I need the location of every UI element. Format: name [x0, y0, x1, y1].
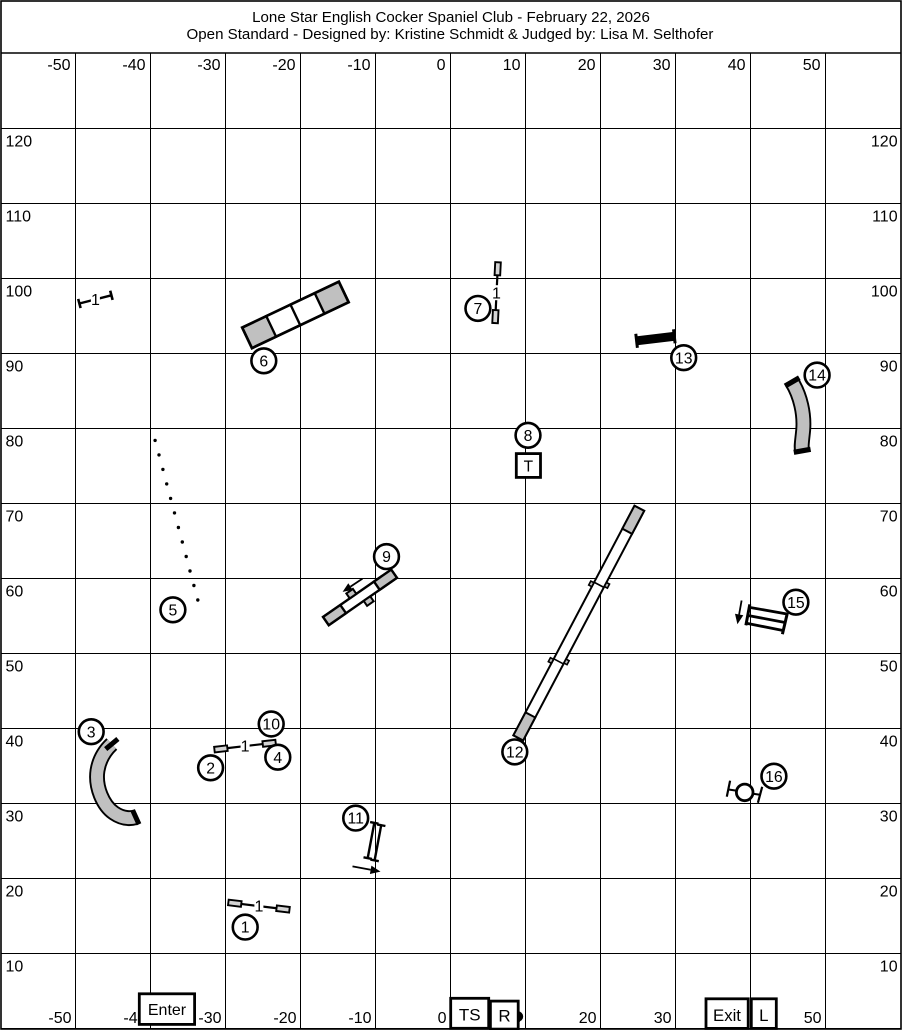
- svg-text:-40: -40: [122, 57, 145, 74]
- svg-text:20: 20: [578, 57, 596, 74]
- svg-text:8: 8: [524, 428, 533, 445]
- svg-text:100: 100: [871, 284, 898, 301]
- svg-text:-10: -10: [348, 1010, 371, 1027]
- svg-text:40: 40: [880, 734, 898, 751]
- svg-text:T: T: [524, 458, 534, 475]
- svg-text:90: 90: [6, 359, 24, 376]
- svg-text:11: 11: [347, 811, 364, 828]
- svg-text:Lone Star English Cocker Spani: Lone Star English Cocker Spaniel Club - …: [252, 9, 650, 26]
- svg-text:50: 50: [880, 659, 898, 676]
- svg-text:L: L: [759, 1006, 768, 1025]
- svg-text:1: 1: [91, 292, 100, 309]
- svg-text:-50: -50: [47, 57, 70, 74]
- svg-text:-30: -30: [198, 1010, 221, 1027]
- svg-text:9: 9: [382, 549, 391, 566]
- svg-text:1: 1: [241, 739, 250, 756]
- svg-text:Enter: Enter: [148, 1002, 187, 1019]
- svg-text:-20: -20: [272, 57, 295, 74]
- svg-text:12: 12: [506, 745, 524, 762]
- svg-text:R: R: [498, 1006, 510, 1025]
- svg-text:110: 110: [6, 209, 32, 226]
- svg-text:120: 120: [871, 134, 898, 151]
- svg-text:6: 6: [259, 353, 268, 370]
- svg-text:-30: -30: [197, 57, 220, 74]
- svg-text:Open Standard - Designed by: K: Open Standard - Designed by: Kristine Sc…: [187, 26, 714, 43]
- svg-text:80: 80: [880, 434, 898, 451]
- svg-text:100: 100: [6, 284, 33, 301]
- svg-text:120: 120: [6, 134, 33, 151]
- svg-text:15: 15: [787, 595, 805, 612]
- svg-text:60: 60: [880, 584, 898, 601]
- svg-text:-10: -10: [347, 57, 370, 74]
- svg-text:13: 13: [675, 350, 693, 367]
- svg-text:50: 50: [803, 57, 821, 74]
- svg-text:70: 70: [880, 509, 898, 526]
- svg-text:20: 20: [880, 884, 898, 901]
- svg-text:-50: -50: [48, 1010, 71, 1027]
- svg-text:5: 5: [169, 602, 178, 619]
- svg-text:50: 50: [804, 1010, 822, 1027]
- svg-text:TS: TS: [459, 1005, 481, 1024]
- svg-text:10: 10: [262, 717, 280, 734]
- svg-text:10: 10: [503, 57, 521, 74]
- svg-text:7: 7: [474, 301, 483, 318]
- svg-text:110: 110: [872, 209, 898, 226]
- svg-text:1: 1: [241, 920, 250, 937]
- svg-text:10: 10: [880, 959, 898, 976]
- svg-text:20: 20: [6, 884, 24, 901]
- svg-text:30: 30: [653, 57, 671, 74]
- svg-text:0: 0: [437, 57, 446, 74]
- svg-text:30: 30: [880, 809, 898, 826]
- svg-text:1: 1: [254, 899, 263, 916]
- svg-text:40: 40: [6, 734, 24, 751]
- svg-text:Exit: Exit: [713, 1006, 741, 1025]
- svg-text:70: 70: [6, 509, 24, 526]
- svg-text:10: 10: [6, 959, 24, 976]
- svg-text:50: 50: [6, 659, 24, 676]
- svg-text:90: 90: [880, 359, 898, 376]
- svg-text:2: 2: [206, 760, 215, 777]
- svg-text:60: 60: [6, 584, 24, 601]
- svg-text:1: 1: [492, 285, 501, 302]
- svg-text:80: 80: [6, 434, 24, 451]
- svg-text:30: 30: [6, 809, 24, 826]
- svg-text:30: 30: [654, 1010, 672, 1027]
- svg-text:4: 4: [273, 750, 282, 767]
- svg-text:16: 16: [765, 769, 783, 786]
- svg-text:0: 0: [438, 1010, 447, 1027]
- svg-text:40: 40: [728, 57, 746, 74]
- svg-text:-20: -20: [273, 1010, 296, 1027]
- svg-text:3: 3: [87, 724, 96, 741]
- svg-text:14: 14: [808, 368, 826, 385]
- svg-text:20: 20: [579, 1010, 597, 1027]
